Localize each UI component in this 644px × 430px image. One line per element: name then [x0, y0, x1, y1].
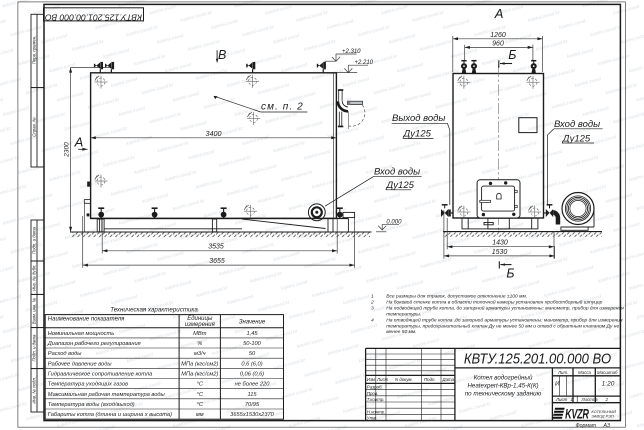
svg-text:Б: Б: [508, 48, 516, 62]
svg-text:Вход воды: Вход воды: [374, 167, 420, 178]
svg-text:МПа (кгс/см2): МПа (кгс/см2): [181, 372, 218, 378]
svg-text:менее 50 мм.: менее 50 мм.: [386, 329, 416, 335]
svg-text:50: 50: [249, 351, 256, 357]
svg-text:по техническому заданию: по техническому заданию: [465, 390, 542, 397]
svg-text:Инв. № дубл.: Инв. № дубл.: [32, 264, 37, 290]
svg-text:Взам. инв. №: Взам. инв. №: [32, 297, 37, 324]
svg-text:Формат: Формат: [576, 423, 597, 429]
svg-text:Ду125: Ду125: [403, 129, 432, 140]
svg-text:Н.контр.: Н.контр.: [367, 409, 386, 414]
svg-text:Листов: Листов: [581, 397, 599, 402]
svg-text:Т.контр.: Т.контр.: [367, 397, 385, 402]
svg-text:Максимальная рабочая температу: Максимальная рабочая температура воды: [48, 392, 166, 398]
svg-text:3535: 3535: [208, 244, 224, 251]
svg-text:Диапазон рабочего регулировани: Диапазон рабочего регулирования: [47, 341, 141, 347]
svg-text:МВт: МВт: [193, 331, 207, 337]
svg-text:МПа (кгс/см2): МПа (кгс/см2): [181, 361, 218, 367]
svg-text:На боковой стенке котла в обла: На боковой стенке котла в области топочн…: [386, 299, 602, 306]
svg-text:А: А: [494, 6, 504, 21]
svg-text:Лист: Лист: [376, 377, 389, 382]
svg-text:70/95: 70/95: [245, 402, 260, 408]
svg-text:Значение: Значение: [239, 320, 266, 326]
svg-text:Рабочее давление воды: Рабочее давление воды: [48, 361, 113, 367]
svg-text:2300: 2300: [64, 142, 71, 158]
svg-text:измерения: измерения: [185, 322, 216, 328]
svg-text:Номинальная мощность: Номинальная мощность: [48, 331, 114, 337]
svg-text:°С: °С: [197, 382, 204, 388]
svg-text:Масса: Масса: [578, 370, 592, 375]
svg-text:см. п. 2: см. п. 2: [261, 102, 304, 113]
svg-text:%: %: [197, 341, 202, 347]
svg-text:Масштаб: Масштаб: [597, 370, 618, 375]
svg-text:0,06 (0,6): 0,06 (0,6): [240, 372, 264, 378]
svg-text:Температура воды (вход/выход): Температура воды (вход/выход): [48, 402, 135, 408]
svg-text:Лист: Лист: [555, 397, 568, 402]
svg-text:А3: А3: [603, 423, 610, 429]
svg-text:°С: °С: [197, 392, 204, 398]
svg-text:Подп. и дата: Подп. и дата: [32, 334, 37, 362]
svg-text:1530: 1530: [492, 249, 508, 256]
svg-text:KVZR: KVZR: [565, 405, 589, 422]
svg-text:1,45: 1,45: [246, 331, 258, 337]
svg-text:1260: 1260: [490, 32, 506, 39]
svg-text:Утв.: Утв.: [367, 416, 377, 421]
svg-text:А: А: [74, 134, 84, 149]
svg-text:Температура уходящих газов: Температура уходящих газов: [48, 382, 128, 388]
svg-text:температуры.: температуры.: [386, 312, 421, 317]
svg-text:3655: 3655: [209, 258, 225, 265]
svg-text:1:20: 1:20: [602, 381, 615, 388]
svg-text:4: 4: [371, 317, 374, 323]
svg-text:Наименование показателя: Наименование показателя: [48, 317, 125, 323]
svg-text:Вход воды: Вход воды: [554, 119, 600, 130]
svg-text:Дата: Дата: [442, 377, 455, 382]
svg-text:50-100: 50-100: [243, 341, 262, 347]
svg-text:Изм: Изм: [367, 377, 375, 382]
svg-text:Подп. и дата: Подп. и дата: [32, 226, 37, 254]
svg-text:КВТУ.125.201.00.000 ВО: КВТУ.125.201.00.000 ВО: [464, 350, 611, 367]
svg-text:°С: °С: [197, 402, 204, 408]
svg-text:Справ. №: Справ. №: [32, 117, 37, 137]
svg-text:Пров.: Пров.: [367, 391, 379, 396]
svg-text:Перв. примен.: Перв. примен.: [32, 36, 37, 65]
svg-text:И: И: [555, 381, 560, 388]
svg-text:Разраб.: Разраб.: [367, 385, 383, 390]
svg-text:КВТУ.125.201.00.000 ВО: КВТУ.125.201.00.000 ВО: [45, 12, 142, 22]
svg-text:3400: 3400: [206, 129, 222, 138]
svg-text:не более 220: не более 220: [235, 382, 271, 388]
svg-text:Техническая характеристика: Техническая характеристика: [110, 306, 198, 313]
svg-text:м3/ч: м3/ч: [194, 351, 206, 357]
svg-text:3: 3: [371, 305, 374, 311]
svg-text:На подводящей трубе котла, д: На подводящей трубе котла, до запорной а…: [386, 304, 624, 311]
svg-text:2: 2: [370, 300, 374, 306]
svg-text:Инв. № подл.: Инв. № подл.: [32, 377, 37, 404]
svg-text:Гидравлическое сопротивление к: Гидравлическое сопротивление котла: [48, 372, 153, 378]
svg-text:мм: мм: [196, 412, 204, 418]
svg-text:Расход воды: Расход воды: [48, 351, 82, 357]
svg-text:Лит.: Лит.: [557, 370, 568, 375]
svg-text:Heatexpert-КВр-1,45-К(К): Heatexpert-КВр-1,45-К(К): [467, 383, 538, 390]
svg-text:1430: 1430: [492, 240, 508, 247]
svg-text:2: 2: [605, 397, 609, 402]
svg-text:Все размеры для справок, допус: Все размеры для справок, допустимое откл…: [386, 294, 527, 300]
svg-text:N докум.: N докум.: [395, 377, 413, 382]
svg-text:Выход воды: Выход воды: [392, 113, 445, 124]
svg-text:Подп.: Подп.: [424, 377, 436, 382]
svg-text:Ду125: Ду125: [386, 180, 415, 191]
svg-text:115: 115: [247, 392, 257, 398]
svg-text:Габариты котла (длинна и ширин: Габариты котла (длинна и ширина х высота…: [48, 412, 172, 418]
svg-text:1: 1: [371, 294, 374, 300]
svg-text:3655х1530х2370: 3655х1530х2370: [230, 412, 274, 418]
svg-text:На отводящей трубе котла ,до з: На отводящей трубе котла ,до запорной ар…: [386, 316, 623, 323]
svg-text:В: В: [218, 48, 226, 62]
svg-text:температуры, предохранительный: температуры, предохранительный клапан Ду…: [386, 322, 619, 329]
svg-text:+2.210: +2.210: [355, 60, 374, 66]
svg-text:960: 960: [492, 41, 504, 48]
svg-text:ЗАВОД РЭП: ЗАВОД РЭП: [591, 414, 614, 419]
svg-text:Б: Б: [506, 266, 514, 280]
svg-text:Котел водогрейный: Котел водогрейный: [474, 375, 533, 382]
svg-text:+2.310: +2.310: [342, 49, 361, 55]
svg-text:0,6 (6,0): 0,6 (6,0): [241, 361, 262, 367]
